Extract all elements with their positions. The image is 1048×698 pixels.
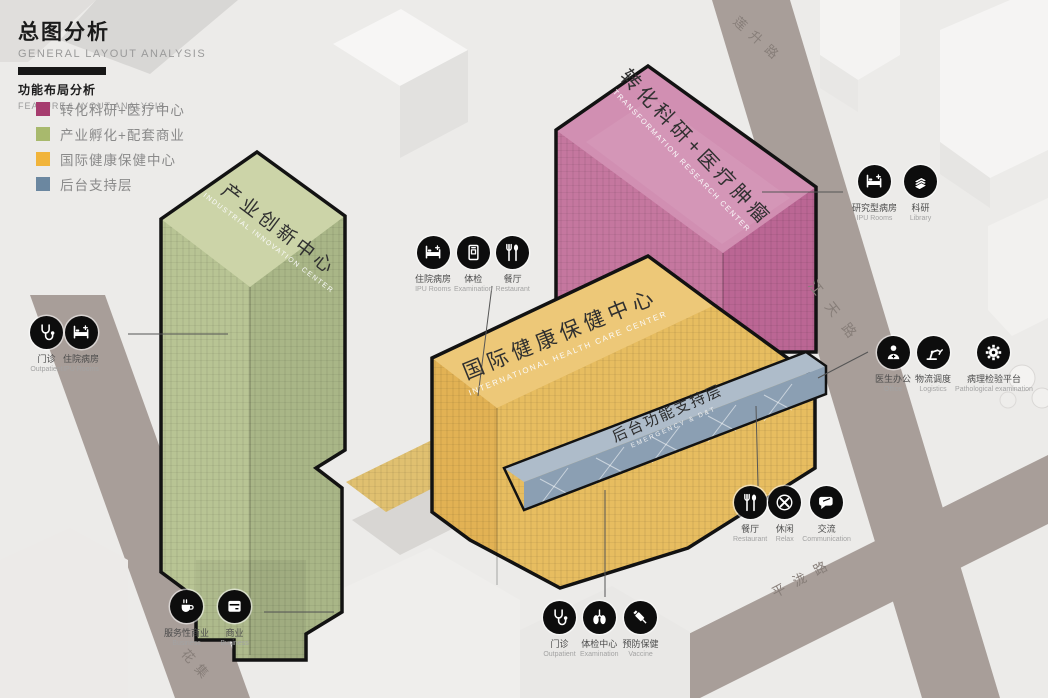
icon-callout: 餐厅Restaurant (733, 486, 767, 543)
scanner-icon (457, 236, 490, 269)
page-title: 总图分析 (18, 16, 206, 46)
robot-arm-icon (917, 336, 950, 369)
icon-label-zh: 科研 (912, 201, 930, 214)
icon-label-zh: 餐厅 (741, 522, 759, 535)
coffee-icon (170, 590, 203, 623)
icon-callout: 体检中心Examination (580, 601, 619, 658)
chat-icon (810, 486, 843, 519)
bed-icon (417, 236, 450, 269)
legend-color-swatch (36, 152, 50, 166)
legend-item: 转化科研+医疗中心 (36, 96, 185, 121)
icon-label-zh: 住院病房 (415, 272, 451, 285)
icon-group-left: 门诊Outpatient住院病房IPU Rooms (30, 316, 99, 373)
icon-label-en: IPU Rooms (63, 366, 99, 373)
doctor-icon (877, 336, 910, 369)
icon-label-en: Logistics (919, 386, 946, 393)
gear-icon (977, 336, 1010, 369)
shop-icon (218, 590, 251, 623)
bed-icon (65, 316, 98, 349)
legend-label: 产业孵化+配套商业 (60, 124, 185, 144)
icon-group-bottom-left: 服务性商业Business商业Business (164, 590, 251, 647)
title-divider-bar (18, 67, 106, 75)
legend: 转化科研+医疗中心产业孵化+配套商业国际健康保健中心后台支持层 (36, 96, 185, 196)
icon-label-en: Library (910, 215, 931, 222)
icon-callout: 研究型病房IPU Rooms (852, 165, 897, 222)
icon-group-bottom-right: 餐厅Restaurant休闲Relax交流Communication (733, 486, 851, 543)
icon-label-zh: 餐厅 (504, 272, 522, 285)
legend-label: 转化科研+医疗中心 (60, 99, 185, 119)
lungs-icon (583, 601, 616, 634)
icon-label-en: Restaurant (733, 536, 767, 543)
icon-group-top-middle: 住院病房IPU Rooms体检Examination餐厅Restaurant (415, 236, 530, 293)
bed-icon (858, 165, 891, 198)
cutlery-icon (496, 236, 529, 269)
icon-callout: 门诊Outpatient (543, 601, 576, 658)
icon-callout: 住院病房IPU Rooms (415, 236, 451, 293)
icon-callout: 休闲Relax (768, 486, 801, 543)
icon-label-zh: 病理检验平台 (967, 372, 1021, 385)
legend-item: 后台支持层 (36, 171, 185, 196)
icon-label-zh: 交流 (818, 522, 836, 535)
icon-callout: 体检Examination (454, 236, 493, 293)
icon-label-zh: 物流调度 (915, 372, 951, 385)
icon-label-en: Pathological examination (955, 386, 1033, 393)
books-icon (904, 165, 937, 198)
legend-item: 产业孵化+配套商业 (36, 121, 185, 146)
icon-label-en: Examination (580, 651, 619, 658)
icon-label-zh: 住院病房 (63, 352, 99, 365)
icon-callout: 餐厅Restaurant (496, 236, 530, 293)
icon-callout: 医生办公Office (875, 336, 911, 393)
icon-label-zh: 门诊 (37, 352, 55, 365)
icon-label-zh: 预防保健 (623, 637, 659, 650)
icon-label-en: Communication (802, 536, 851, 543)
legend-item: 国际健康保健中心 (36, 146, 185, 171)
legend-color-swatch (36, 177, 50, 191)
icon-label-zh: 医生办公 (875, 372, 911, 385)
icon-label-zh: 体检中心 (581, 637, 617, 650)
icon-label-en: Business (220, 640, 248, 647)
relax-icon (768, 486, 801, 519)
icon-label-en: Outpatient (30, 366, 62, 373)
icon-label-zh: 服务性商业 (164, 626, 209, 639)
icon-label-en: Outpatient (543, 651, 575, 658)
icon-label-en: Office (884, 386, 902, 393)
icon-callout: 科研Library (904, 165, 937, 222)
icon-callout: 物流调度Logistics (915, 336, 951, 393)
page-title-en: GENERAL LAYOUT ANALYSIS (18, 48, 206, 60)
icon-callout: 门诊Outpatient (30, 316, 63, 373)
icon-label-zh: 研究型病房 (852, 201, 897, 214)
legend-color-swatch (36, 127, 50, 141)
icon-label-zh: 休闲 (776, 522, 794, 535)
icon-label-en: Vaccine (628, 651, 652, 658)
legend-label: 后台支持层 (60, 174, 133, 194)
icon-label-en: Examination (454, 286, 493, 293)
legend-label: 国际健康保健中心 (60, 149, 176, 169)
layout-analysis-diagram: 总图分析 GENERAL LAYOUT ANALYSIS 功能布局分析 FEAT… (0, 0, 1048, 698)
cutlery-icon (734, 486, 767, 519)
icon-label-zh: 门诊 (550, 637, 568, 650)
stethoscope-icon (543, 601, 576, 634)
icon-callout: 服务性商业Business (164, 590, 209, 647)
icon-group-bottom-center: 门诊Outpatient体检中心Examination预防保健Vaccine (543, 601, 659, 658)
icon-callout: 病理检验平台Pathological examination (955, 336, 1033, 393)
icon-label-en: Relax (776, 536, 794, 543)
icon-group-top-right: 研究型病房IPU Rooms科研Library (852, 165, 937, 222)
icon-label-en: Restaurant (496, 286, 530, 293)
stethoscope-icon (30, 316, 63, 349)
icon-label-zh: 体检 (464, 272, 482, 285)
legend-color-swatch (36, 102, 50, 116)
icon-callout: 交流Communication (802, 486, 851, 543)
icon-label-en: Business (172, 640, 200, 647)
icon-callout: 住院病房IPU Rooms (63, 316, 99, 373)
icon-group-right: 医生办公Office物流调度Logistics病理检验平台Pathologica… (875, 336, 1033, 393)
syringe-icon (624, 601, 657, 634)
icon-label-zh: 商业 (226, 626, 244, 639)
icon-label-en: IPU Rooms (857, 215, 893, 222)
icon-callout: 预防保健Vaccine (623, 601, 659, 658)
icon-label-en: IPU Rooms (415, 286, 451, 293)
icon-callout: 商业Business (218, 590, 251, 647)
